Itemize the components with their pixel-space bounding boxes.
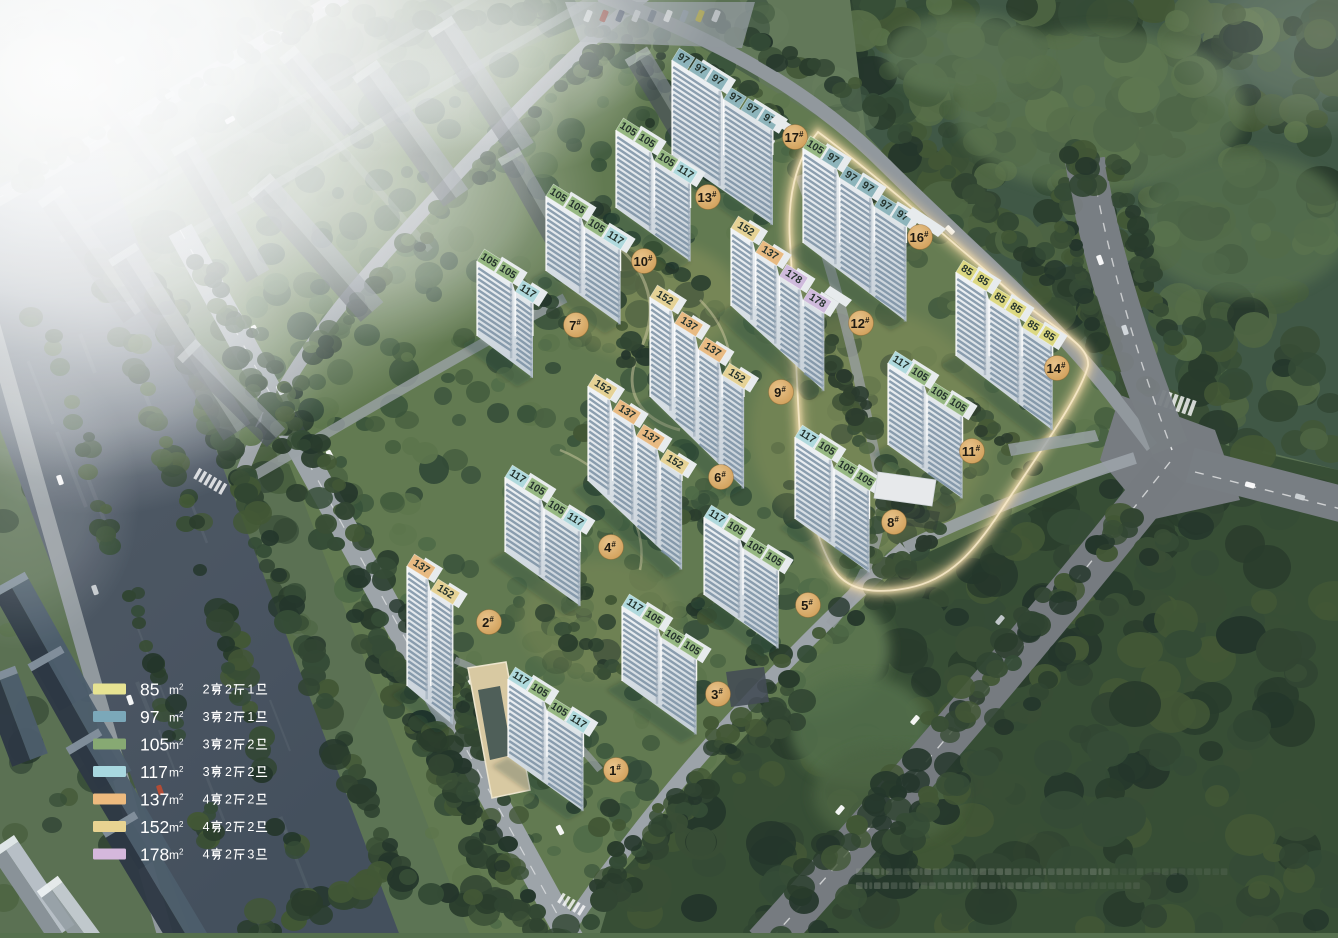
svg-text:3: 3: [203, 765, 210, 779]
svg-text:137: 137: [140, 790, 169, 810]
svg-text:105: 105: [140, 735, 169, 755]
svg-text:117: 117: [140, 762, 168, 782]
svg-text:152: 152: [140, 817, 169, 837]
svg-text:2: 2: [225, 793, 232, 807]
svg-text:2: 2: [247, 738, 254, 752]
svg-text:2: 2: [225, 820, 232, 834]
svg-text:2: 2: [247, 765, 254, 779]
svg-text:4: 4: [203, 793, 210, 807]
svg-text:97: 97: [140, 707, 159, 727]
svg-text:4: 4: [203, 820, 210, 834]
svg-text:1: 1: [247, 683, 254, 697]
svg-text:2: 2: [247, 793, 254, 807]
svg-text:2: 2: [225, 683, 232, 697]
svg-text:1: 1: [247, 710, 254, 724]
svg-text:85: 85: [140, 680, 159, 700]
svg-text:3: 3: [247, 848, 254, 862]
svg-text:2: 2: [203, 683, 210, 697]
svg-text:2: 2: [225, 710, 232, 724]
svg-text:2: 2: [225, 765, 232, 779]
svg-text:4: 4: [203, 848, 210, 862]
svg-text:2: 2: [225, 848, 232, 862]
svg-text:2: 2: [225, 738, 232, 752]
svg-text:3: 3: [203, 710, 210, 724]
svg-text:2: 2: [247, 820, 254, 834]
svg-text:178: 178: [140, 845, 169, 865]
svg-text:3: 3: [203, 738, 210, 752]
